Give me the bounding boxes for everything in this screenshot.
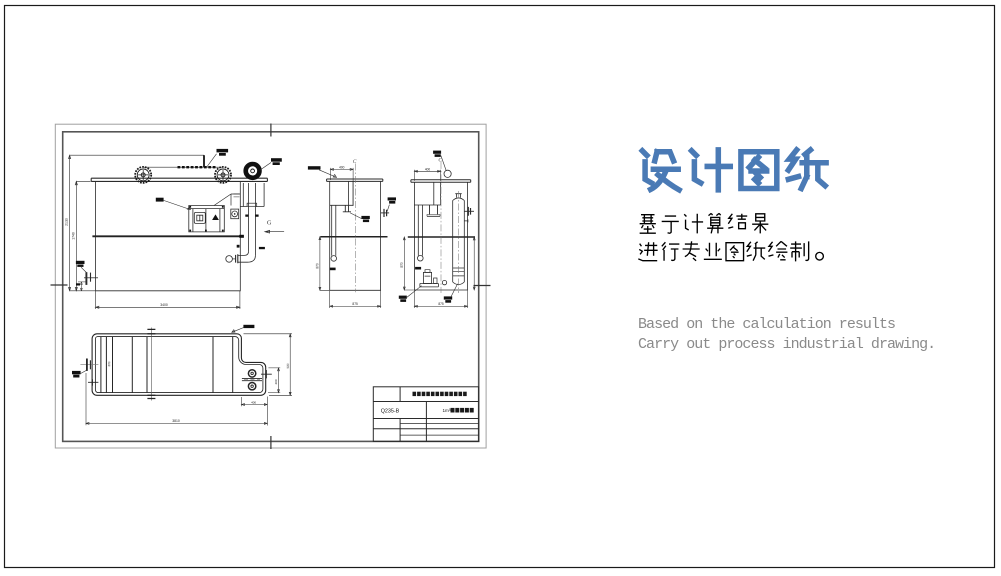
svg-text:Q235-B: Q235-B xyxy=(381,408,400,414)
svg-text:3400: 3400 xyxy=(160,303,168,307)
svg-text:1740: 1740 xyxy=(72,232,76,240)
svg-text:C: C xyxy=(353,159,357,165)
svg-text:400: 400 xyxy=(251,400,256,404)
svg-text:870: 870 xyxy=(107,361,111,366)
svg-text:870: 870 xyxy=(400,262,404,268)
svg-text:400: 400 xyxy=(425,167,431,171)
svg-text:1m³: 1m³ xyxy=(443,408,451,413)
svg-text:400: 400 xyxy=(274,379,278,384)
svg-text:920: 920 xyxy=(286,363,290,368)
svg-text:G: G xyxy=(267,221,272,227)
svg-text:400: 400 xyxy=(339,166,345,170)
svg-text:2130: 2130 xyxy=(65,218,69,226)
svg-text:3810: 3810 xyxy=(172,419,180,423)
svg-text:870: 870 xyxy=(315,263,319,269)
svg-text:875: 875 xyxy=(438,302,444,306)
svg-text:875: 875 xyxy=(352,302,358,306)
